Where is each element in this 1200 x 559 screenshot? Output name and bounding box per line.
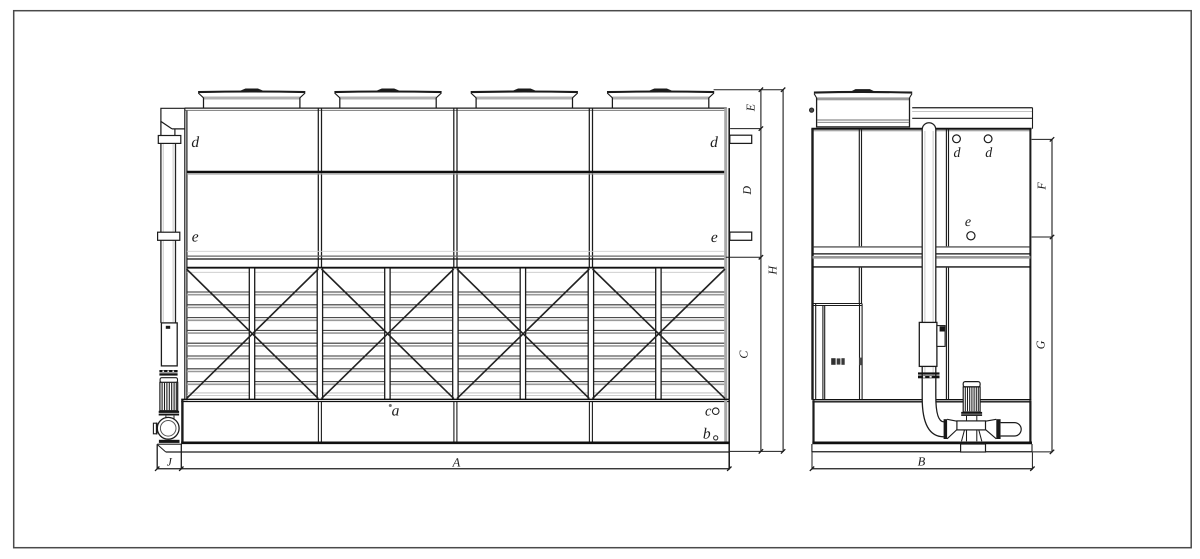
svg-text:c: c — [705, 404, 712, 420]
svg-text:e: e — [965, 215, 971, 230]
svg-text:F: F — [1035, 182, 1049, 191]
svg-text:d: d — [954, 146, 962, 161]
svg-text:d: d — [985, 146, 993, 161]
svg-text:a: a — [392, 403, 400, 420]
svg-text:e: e — [192, 228, 199, 245]
svg-text:B: B — [918, 454, 926, 468]
svg-text:e: e — [711, 229, 718, 246]
svg-text:H: H — [765, 265, 779, 276]
svg-text:A: A — [452, 456, 461, 470]
svg-text:E: E — [743, 103, 757, 112]
svg-text:b: b — [703, 425, 711, 442]
svg-text:D: D — [740, 186, 754, 196]
svg-text:C: C — [736, 350, 750, 359]
svg-text:G: G — [1034, 340, 1048, 349]
svg-text:d: d — [191, 134, 199, 151]
svg-text:d: d — [710, 134, 718, 151]
svg-text:J: J — [167, 456, 173, 468]
